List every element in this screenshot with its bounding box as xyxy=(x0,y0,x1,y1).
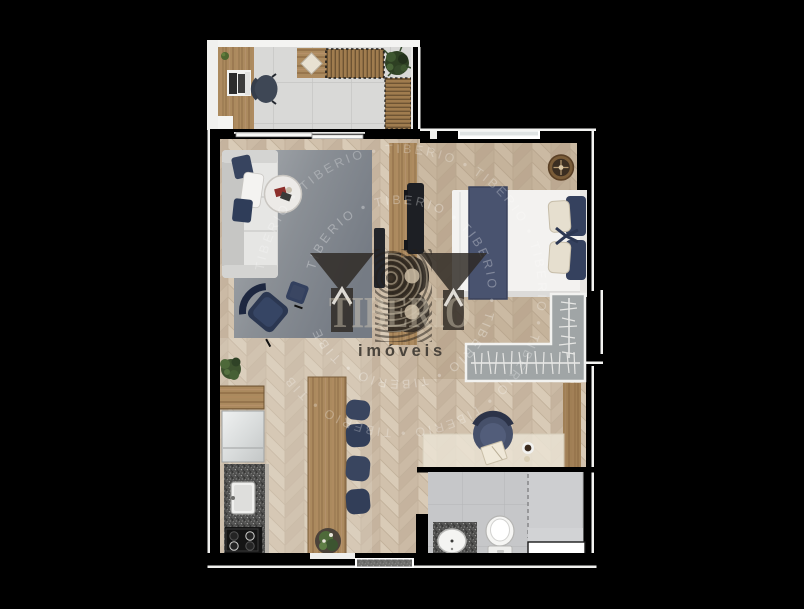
svg-text:TIBERIO: TIBERIO xyxy=(329,288,471,337)
svg-text:imóveis: imóveis xyxy=(358,342,446,360)
